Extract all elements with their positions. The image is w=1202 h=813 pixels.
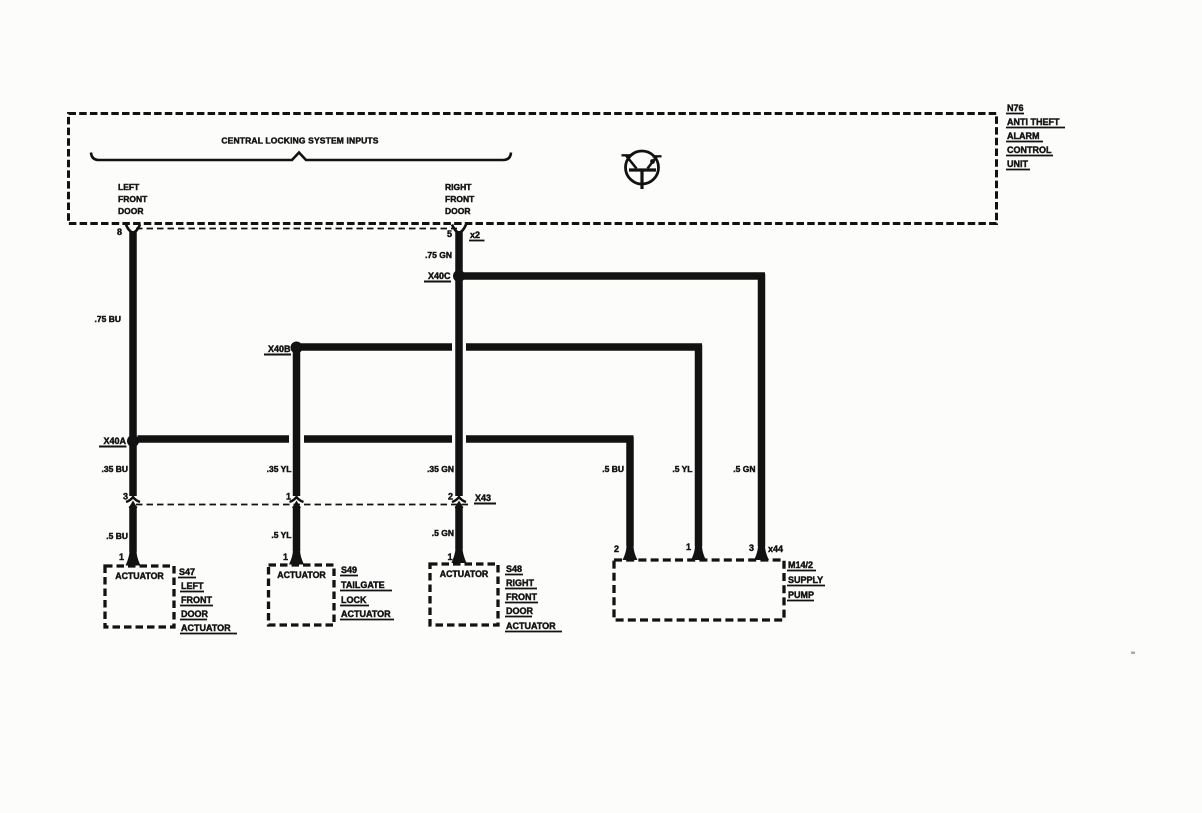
svg-text:DOOR: DOOR [181,609,209,619]
svg-text:8: 8 [117,227,122,237]
svg-text:.5 YL: .5 YL [271,530,291,540]
svg-text:DOOR: DOOR [118,206,144,216]
svg-text:S47: S47 [179,567,195,577]
svg-text:.5 GN: .5 GN [733,464,755,474]
svg-text:LOCK: LOCK [341,595,367,605]
svg-text:1: 1 [686,542,691,552]
svg-text:ACTUATOR: ACTUATOR [181,623,231,633]
svg-text:PUMP: PUMP [788,590,814,600]
svg-text:5: 5 [447,229,452,239]
svg-text:.5 GN: .5 GN [432,528,454,538]
svg-text:FRONT: FRONT [181,595,212,605]
svg-text:DOOR: DOOR [445,206,471,216]
svg-text:RIGHT: RIGHT [445,182,472,192]
svg-text:M14/2: M14/2 [788,560,813,570]
svg-text:LEFT: LEFT [181,581,204,591]
svg-text:N76: N76 [1007,103,1024,113]
svg-text:FRONT: FRONT [506,592,537,602]
svg-text:x2: x2 [470,230,480,240]
svg-text:ANTI THEFT: ANTI THEFT [1007,117,1060,127]
svg-text:DOOR: DOOR [506,606,534,616]
svg-text:1: 1 [286,492,291,502]
svg-text:TAILGATE: TAILGATE [341,580,385,590]
svg-text:S48: S48 [506,564,522,574]
svg-text:2: 2 [448,492,453,502]
svg-text:.75 BU: .75 BU [95,314,121,324]
svg-text:ACTUATOR: ACTUATOR [440,569,489,579]
svg-text:x44: x44 [768,544,783,554]
svg-text:ACTUATOR: ACTUATOR [277,570,326,580]
svg-text:X40B: X40B [268,344,291,354]
svg-text:ACTUATOR: ACTUATOR [341,609,391,619]
svg-text:X40C: X40C [428,271,451,281]
svg-text:UNIT: UNIT [1007,159,1028,169]
svg-text:3: 3 [123,492,128,502]
svg-text:.35 YL: .35 YL [267,464,292,474]
svg-text:SUPPLY: SUPPLY [788,575,823,585]
svg-text:2: 2 [614,544,619,554]
svg-text:1: 1 [283,552,288,562]
svg-text:S49: S49 [341,565,357,575]
svg-text:RIGHT: RIGHT [506,578,535,588]
svg-text:X43: X43 [475,493,491,503]
svg-text:CONTROL: CONTROL [1007,145,1052,155]
svg-text:.35 BU: .35 BU [102,464,128,474]
svg-text:ACTUATOR: ACTUATOR [115,571,164,581]
svg-text:.75 GN: .75 GN [425,250,452,260]
svg-text:.5 BU: .5 BU [106,531,128,541]
svg-text:LEFT: LEFT [118,182,140,192]
svg-text:ACTUATOR: ACTUATOR [506,621,556,631]
svg-text:3: 3 [749,543,754,553]
svg-text:.35 GN: .35 GN [427,464,454,474]
svg-text:X40A: X40A [103,436,126,446]
svg-text:ALARM: ALARM [1007,131,1040,141]
svg-text:FRONT: FRONT [445,194,475,204]
svg-text:FRONT: FRONT [118,194,148,204]
svg-text:CENTRAL LOCKING SYSTEM INPUTS: CENTRAL LOCKING SYSTEM INPUTS [221,136,378,146]
svg-text:1: 1 [447,552,452,562]
svg-text:.5 BU: .5 BU [602,464,624,474]
svg-text:.5 YL: .5 YL [672,464,692,474]
svg-text:1: 1 [119,552,124,562]
